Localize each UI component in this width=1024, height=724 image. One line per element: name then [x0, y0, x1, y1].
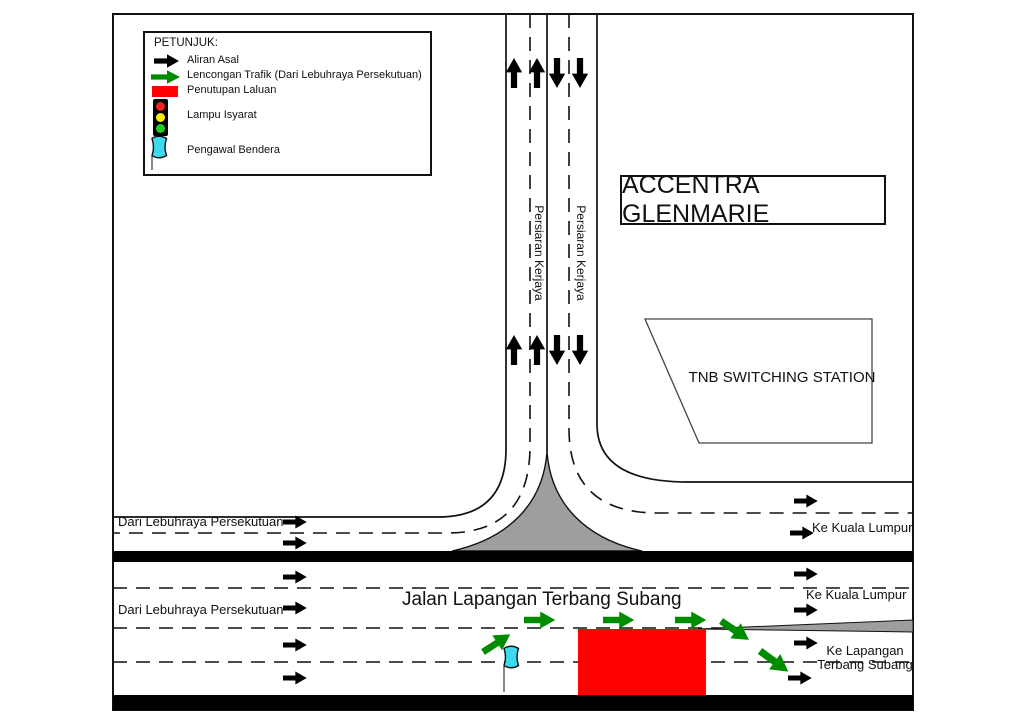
- flow-arrow-right: [283, 571, 307, 584]
- accentra-text: ACCENTRA GLENMARIE: [622, 171, 884, 229]
- flow-arrow-right: [794, 604, 818, 617]
- flag-icon: [504, 646, 519, 668]
- road-bottom-edge: [113, 695, 913, 710]
- label-ke-lapangan-terbang-subang: Ke Lapangan Terbang Subang: [815, 644, 915, 672]
- label-ke-kuala-lumpur-upper: Ke Kuala Lumpur: [812, 520, 912, 535]
- green-arrow-icon: [149, 70, 183, 84]
- flow-arrow-right: [283, 602, 307, 615]
- traffic-light-red: [156, 102, 165, 111]
- legend-item-label: Aliran Asal: [187, 54, 239, 66]
- flow-arrow-up: [529, 58, 545, 88]
- black-arrow-icon: [152, 54, 182, 68]
- flow-arrow-right: [283, 537, 307, 550]
- traffic-management-plan: PETUNJUK: Aliran Asal Lencongan Trafik (…: [0, 0, 1024, 724]
- building-label-accentra: ACCENTRA GLENMARIE: [620, 175, 886, 225]
- closure-red-block: [578, 629, 706, 695]
- flow-arrow-up: [506, 58, 522, 88]
- legend-item-label: Lencongan Trafik (Dari Lebuhraya Perseku…: [187, 69, 422, 81]
- flow-arrow-right: [794, 495, 818, 508]
- legend-box: PETUNJUK: Aliran Asal Lencongan Trafik (…: [143, 31, 432, 176]
- ke-lapangan-line2: Terbang Subang: [815, 658, 915, 672]
- road-name-jalan-lapangan: Jalan Lapangan Terbang Subang: [402, 589, 682, 611]
- legend-title: PETUNJUK:: [154, 37, 218, 49]
- traffic-light-icon: [153, 99, 168, 136]
- flow-arrow-right: [283, 672, 307, 685]
- flow-arrow-right: [788, 672, 812, 685]
- flow-arrow-down: [549, 58, 565, 88]
- diversion-arrow-right: [524, 612, 555, 629]
- building-label-tnb: TNB SWITCHING STATION: [677, 369, 887, 386]
- traffic-light-green: [156, 124, 165, 133]
- junction-island: [452, 452, 642, 551]
- flow-arrow-right: [790, 527, 814, 540]
- legend-item-label: Pengawal Bendera: [187, 144, 280, 156]
- flow-arrow-up: [529, 335, 545, 365]
- legend-item-label: Lampu Isyarat: [187, 109, 257, 121]
- ke-lapangan-line1: Ke Lapangan: [815, 644, 915, 658]
- flow-arrow-down: [549, 335, 565, 365]
- median-bar: [113, 551, 913, 562]
- flag-marshal: [504, 646, 519, 692]
- diversion-arrow-right: [603, 612, 634, 629]
- flow-arrow-right: [794, 568, 818, 581]
- road-name-persiaran-kerjaya-left: Persiaran Kerjaya: [532, 198, 546, 308]
- road-name-persiaran-kerjaya-right: Persiaran Kerjaya: [574, 198, 588, 308]
- legend-item-label: Penutupan Laluan: [187, 84, 276, 96]
- flag-icon: [150, 136, 174, 172]
- label-ke-kuala-lumpur-lower: Ke Kuala Lumpur: [806, 587, 906, 602]
- traffic-light-yellow: [156, 113, 165, 122]
- closure-swatch-icon: [152, 86, 178, 97]
- flow-arrow-down: [572, 58, 588, 88]
- label-dari-lebuhraya-lower: Dari Lebuhraya Persekutuan: [118, 602, 284, 617]
- label-dari-lebuhraya-upper: Dari Lebuhraya Persekutuan: [118, 514, 284, 529]
- flow-arrow-down: [572, 335, 588, 365]
- flow-arrow-up: [506, 335, 522, 365]
- flow-arrow-right: [283, 639, 307, 652]
- diversion-arrow-downright: [716, 613, 754, 647]
- diversion-arrow-right: [675, 612, 706, 629]
